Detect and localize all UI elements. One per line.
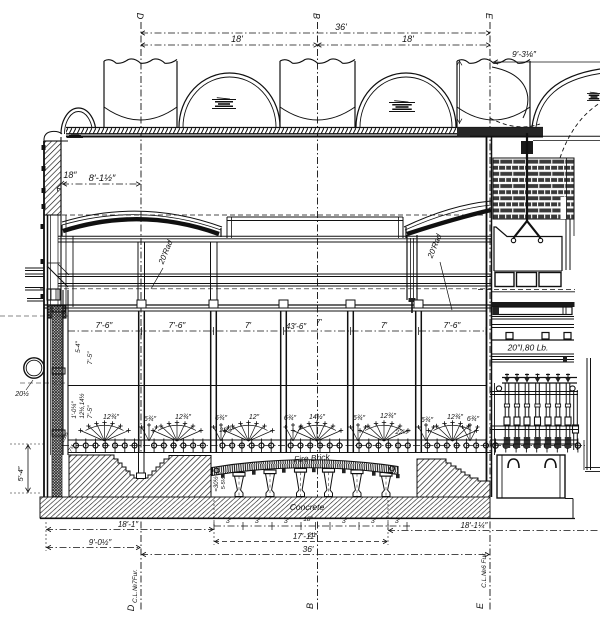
svg-text:12¾″: 12¾″ — [380, 413, 397, 420]
svg-text:B: B — [305, 603, 315, 609]
svg-text:Concrete: Concrete — [290, 502, 325, 512]
svg-text:22½°: 22½° — [218, 426, 235, 434]
svg-text:36′: 36′ — [302, 544, 313, 554]
svg-text:9′-3⅛″: 9′-3⅛″ — [512, 49, 537, 59]
svg-text:6¾″: 6¾″ — [144, 416, 157, 423]
svg-text:18″: 18″ — [63, 170, 77, 180]
svg-text:5-4″: 5-4″ — [75, 340, 82, 352]
svg-text:C.L.№7Fur.: C.L.№7Fur. — [132, 569, 139, 603]
svg-text:18″: 18″ — [303, 516, 313, 523]
svg-text:12½,14½: 12½,14½ — [79, 393, 86, 418]
svg-text:D: D — [126, 604, 136, 611]
svg-text:17′-11″: 17′-11″ — [293, 532, 318, 541]
svg-text:D: D — [135, 13, 145, 20]
svg-text:B: B — [312, 13, 322, 19]
svg-text:18': 18' — [402, 34, 414, 44]
svg-text:6¾″: 6¾″ — [353, 415, 366, 422]
svg-text:12¾″: 12¾″ — [447, 414, 464, 421]
svg-text:1′-0¼″: 1′-0¼″ — [72, 401, 78, 419]
svg-text:18′-1¼″: 18′-1¼″ — [460, 521, 488, 530]
svg-text:7′: 7′ — [316, 317, 322, 326]
svg-text:7′-6″: 7′-6″ — [96, 320, 114, 330]
svg-text:3′: 3′ — [284, 518, 290, 525]
svg-text:7′-6″: 7′-6″ — [444, 320, 462, 330]
svg-text:36': 36' — [335, 22, 347, 32]
svg-text:12¾″: 12¾″ — [103, 414, 120, 421]
svg-text:14½″: 14½″ — [309, 413, 326, 421]
svg-text:7′-5″: 7′-5″ — [87, 351, 94, 365]
svg-text:6¾″: 6¾″ — [467, 416, 480, 423]
svg-text:7′: 7′ — [381, 320, 388, 330]
svg-text:12¾″: 12¾″ — [175, 414, 192, 421]
svg-text:20½: 20½ — [14, 390, 29, 398]
svg-text:5′-4″: 5′-4″ — [16, 466, 25, 481]
svg-text:12″: 12″ — [249, 414, 260, 421]
svg-text:7′-5″: 7′-5″ — [87, 405, 94, 419]
svg-text:C.L.№6 Fur.: C.L.№6 Fur. — [481, 552, 488, 588]
svg-text:3′: 3′ — [255, 518, 261, 525]
svg-text:6¾″: 6¾″ — [215, 415, 228, 422]
svg-text:5-5½: 5-5½ — [220, 476, 227, 489]
svg-text:3′: 3′ — [395, 518, 401, 525]
svg-text:6¾″: 6¾″ — [284, 415, 297, 422]
svg-text:43′-6″: 43′-6″ — [286, 322, 308, 331]
svg-text:18': 18' — [231, 34, 243, 44]
svg-text:6¾″: 6¾″ — [421, 417, 434, 424]
svg-text:E: E — [475, 602, 485, 609]
svg-text:7′-6″: 7′-6″ — [169, 320, 187, 330]
svg-text:3′: 3′ — [226, 518, 232, 525]
svg-text:7′: 7′ — [245, 320, 252, 330]
svg-text:3′: 3′ — [342, 518, 348, 525]
svg-text:8′-1½″: 8′-1½″ — [89, 173, 116, 184]
svg-text:=30½: =30½ — [213, 476, 220, 491]
svg-text:18′-1″: 18′-1″ — [118, 520, 140, 529]
svg-text:22½°: 22½° — [394, 428, 411, 436]
svg-text:E: E — [484, 13, 494, 20]
svg-text:20″I,80 Lb.: 20″I,80 Lb. — [507, 343, 549, 353]
svg-text:3′: 3′ — [371, 518, 377, 525]
svg-text:9′-0½″: 9′-0½″ — [89, 538, 113, 547]
